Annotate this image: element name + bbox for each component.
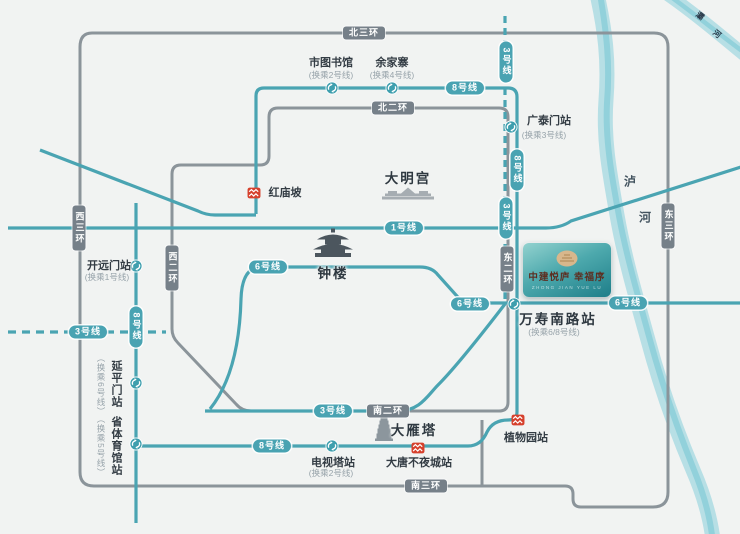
metro-line-pill: 8号线 <box>130 306 143 347</box>
project-subtitle: ZHONG JIAN YUE LU <box>532 285 602 290</box>
metro-line-pill: 1号线 <box>385 222 423 235</box>
road-label-pill: 北三环 <box>343 27 385 40</box>
zhonglou-bell-tower-icon <box>309 229 357 264</box>
metro-line-pill: 8号线 <box>511 149 524 190</box>
metro-line-pill: 3号线 <box>314 405 352 418</box>
transfer-station-marker[interactable] <box>326 440 339 453</box>
map-text-label: 市图书馆 <box>309 54 353 70</box>
metro-line-pill: 8号线 <box>446 82 484 95</box>
transfer-station-marker[interactable] <box>130 260 143 273</box>
transfer-station-marker[interactable] <box>326 82 339 95</box>
transfer-station-marker[interactable] <box>130 438 143 451</box>
map-text-label: 红庙坡 <box>269 184 302 200</box>
metro-line-pill: 6号线 <box>451 298 489 311</box>
road-label-pill: 南三环 <box>405 480 447 493</box>
station-red-marker[interactable] <box>247 186 261 198</box>
map-text-label: 大明宫 <box>385 167 432 187</box>
map-text-label: 钟楼 <box>318 262 349 282</box>
map-text-label: 万寿南路站 <box>519 308 597 328</box>
metro-line-pill: 6号线 <box>609 297 647 310</box>
map-text-label: 河 <box>639 209 651 226</box>
map-text-label: 余家寨 <box>376 54 409 70</box>
project-logo-card[interactable]: 中建悦庐 幸福序 ZHONG JIAN YUE LU <box>523 243 611 297</box>
metro-line-pill: 8号线 <box>253 440 291 453</box>
map-text-label: 大雁塔 <box>391 419 438 439</box>
transfer-note-label: (换乘3号线) <box>522 129 566 141</box>
transfer-note-label: (换乘6/8号线) <box>528 326 579 338</box>
transfer-note-label: （换乘6号线） <box>95 354 107 417</box>
map-labels-layer: 北三环北二环西三环西二环东二环东三环南二环南三环8号线3号线8号线3号线1号线6… <box>0 0 740 534</box>
station-red-marker[interactable] <box>411 441 425 453</box>
station-red-marker[interactable] <box>511 413 525 425</box>
road-label-pill: 东二环 <box>501 247 514 292</box>
road-label-pill: 西二环 <box>166 246 179 291</box>
map-text-label: 延平门站 <box>108 360 124 408</box>
road-label-pill: 北二环 <box>372 102 414 115</box>
metro-line-pill: 3号线 <box>500 197 513 238</box>
transfer-station-marker[interactable] <box>386 82 399 95</box>
map-text-label: 泸 <box>624 173 636 190</box>
transfer-station-marker[interactable] <box>505 121 518 134</box>
metro-line-pill: 3号线 <box>500 41 513 82</box>
transfer-note-label: (换乘2号线) <box>309 467 353 479</box>
map-text-label: 植物园站 <box>504 429 548 445</box>
daminggong-palace-icon <box>380 187 436 206</box>
map-text-label: 大唐不夜城站 <box>386 454 452 470</box>
transfer-note-label: （换乘5号线） <box>95 415 107 478</box>
map-text-label: 河 <box>710 27 723 41</box>
transfer-station-marker[interactable] <box>130 377 143 390</box>
map-text-label: 省体育馆站 <box>108 416 124 476</box>
road-label-pill: 南二环 <box>367 405 409 418</box>
project-title: 中建悦庐 幸福序 <box>528 269 605 283</box>
transfer-note-label: (换乘2号线) <box>309 69 353 81</box>
metro-line-pill: 3号线 <box>69 326 107 339</box>
transit-map-canvas: 中建悦庐 幸福序 ZHONG JIAN YUE LU 北三环北二环西三环西二环东… <box>0 0 740 534</box>
project-emblem-icon <box>555 250 579 267</box>
road-label-pill: 东三环 <box>662 204 675 249</box>
map-text-label: 灞 <box>693 9 706 23</box>
transfer-note-label: (换乘1号线) <box>85 271 129 283</box>
metro-line-pill: 6号线 <box>249 261 287 274</box>
map-text-label: 广泰门站 <box>527 112 571 128</box>
road-label-pill: 西三环 <box>73 206 86 251</box>
transfer-note-label: (换乘4号线) <box>370 69 414 81</box>
